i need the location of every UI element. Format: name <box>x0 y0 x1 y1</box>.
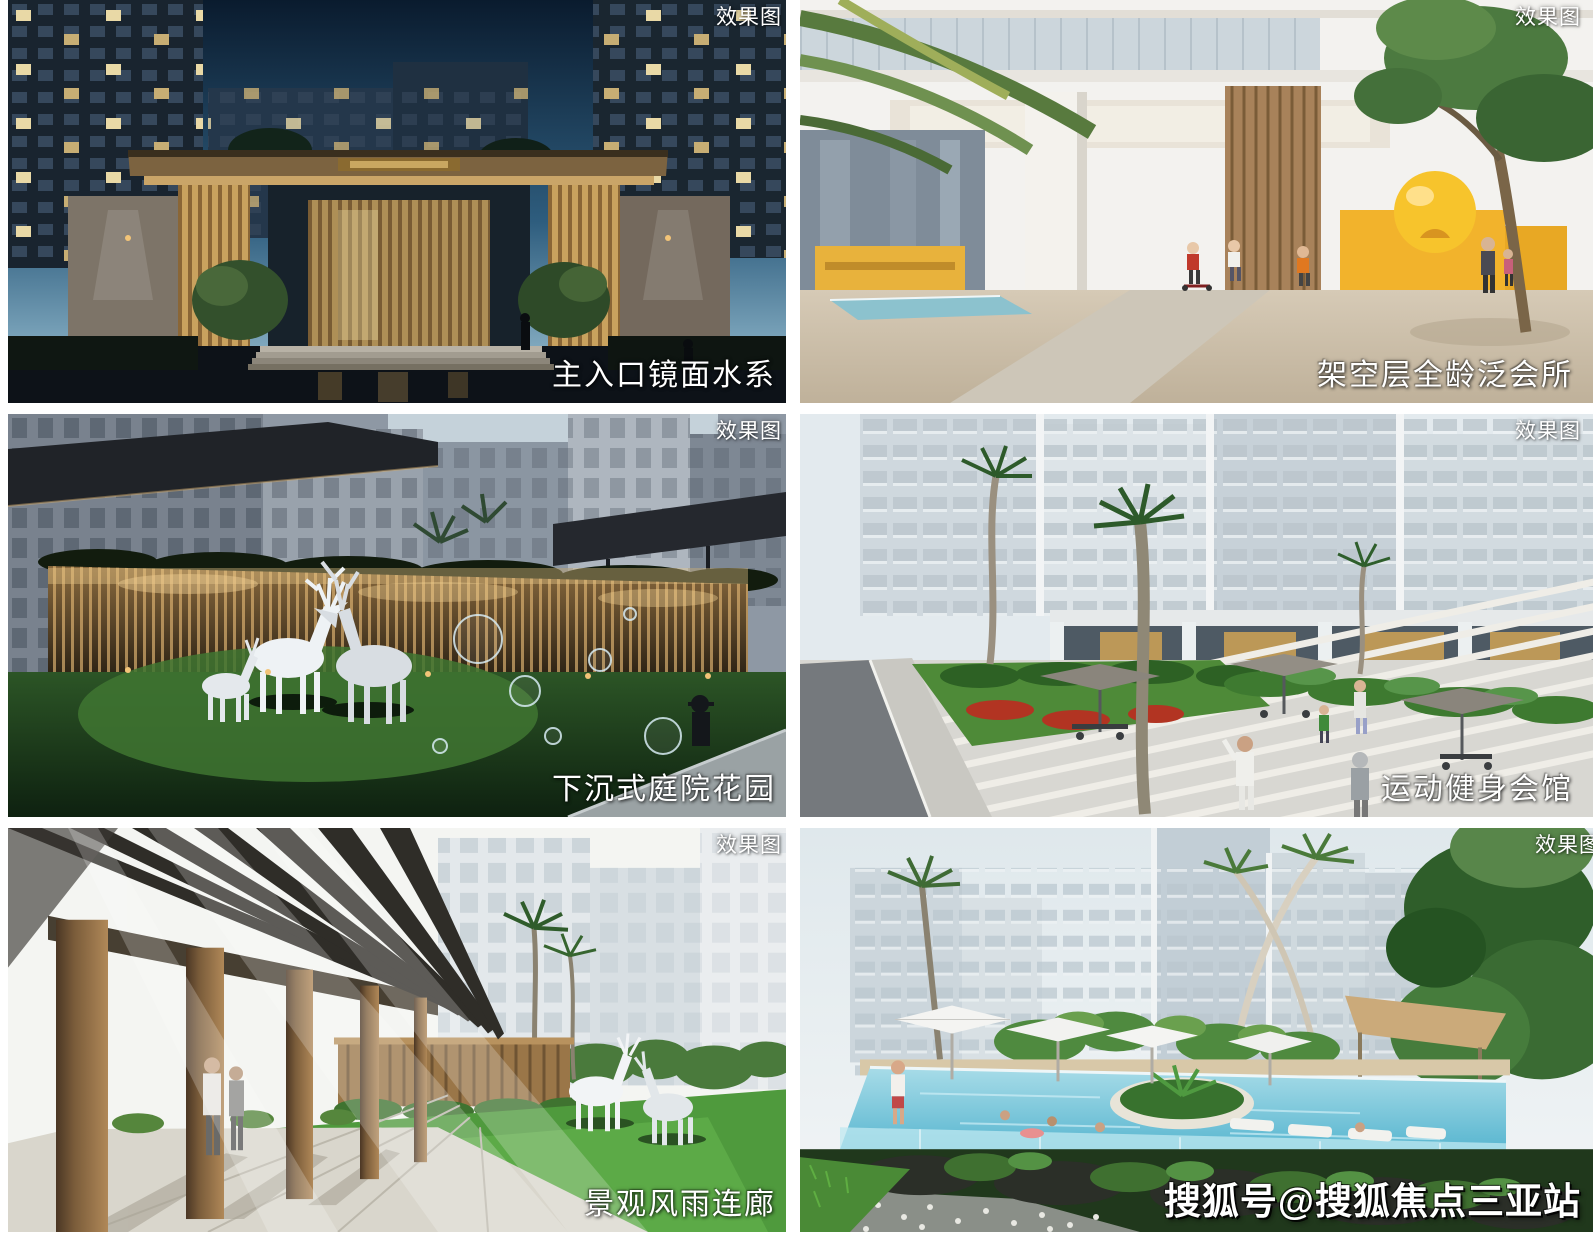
stilt-floor-clubhouse-image <box>800 0 1593 403</box>
panel-main-entrance[interactable]: 效果图 主入口镜面水系 <box>8 0 786 403</box>
panel-stilt-clubhouse[interactable]: 效果图 架空层全龄泛会所 <box>800 0 1593 403</box>
panel-caption-sunken-courtyard: 下沉式庭院花园 <box>552 775 776 805</box>
sunken-courtyard-image <box>8 414 786 817</box>
swimming-pool-image <box>800 828 1593 1232</box>
render-badge: 效果图 <box>1515 421 1581 442</box>
panel-swimming-pool[interactable]: 效果图 搜狐号@搜狐焦点三亚站 <box>800 828 1593 1232</box>
render-badge: 效果图 <box>716 7 782 28</box>
covered-corridor-image <box>8 828 786 1232</box>
render-badge: 效果图 <box>1515 7 1581 28</box>
panel-caption-stilt-clubhouse: 架空层全龄泛会所 <box>1317 361 1573 391</box>
panel-covered-corridor[interactable]: 效果图 景观风雨连廊 <box>8 828 786 1232</box>
render-badge: 效果图 <box>716 421 782 442</box>
rendering-collage: 效果图 主入口镜面水系 <box>0 0 1593 1237</box>
render-badge: 效果图 <box>1535 835 1593 856</box>
panel-sunken-courtyard[interactable]: 效果图 下沉式庭院花园 <box>8 414 786 817</box>
night-entrance-gate-image <box>8 0 786 403</box>
sports-club-plaza-image <box>800 414 1593 817</box>
sohu-watermark: 搜狐号@搜狐焦点三亚站 <box>1164 1183 1581 1220</box>
panel-sports-club[interactable]: 效果图 运动健身会馆 <box>800 414 1593 817</box>
panel-caption-sports-club: 运动健身会馆 <box>1381 775 1573 805</box>
panel-caption-covered-corridor: 景观风雨连廊 <box>584 1190 776 1220</box>
panel-caption-main-entrance: 主入口镜面水系 <box>552 361 776 391</box>
render-badge: 效果图 <box>716 835 782 856</box>
